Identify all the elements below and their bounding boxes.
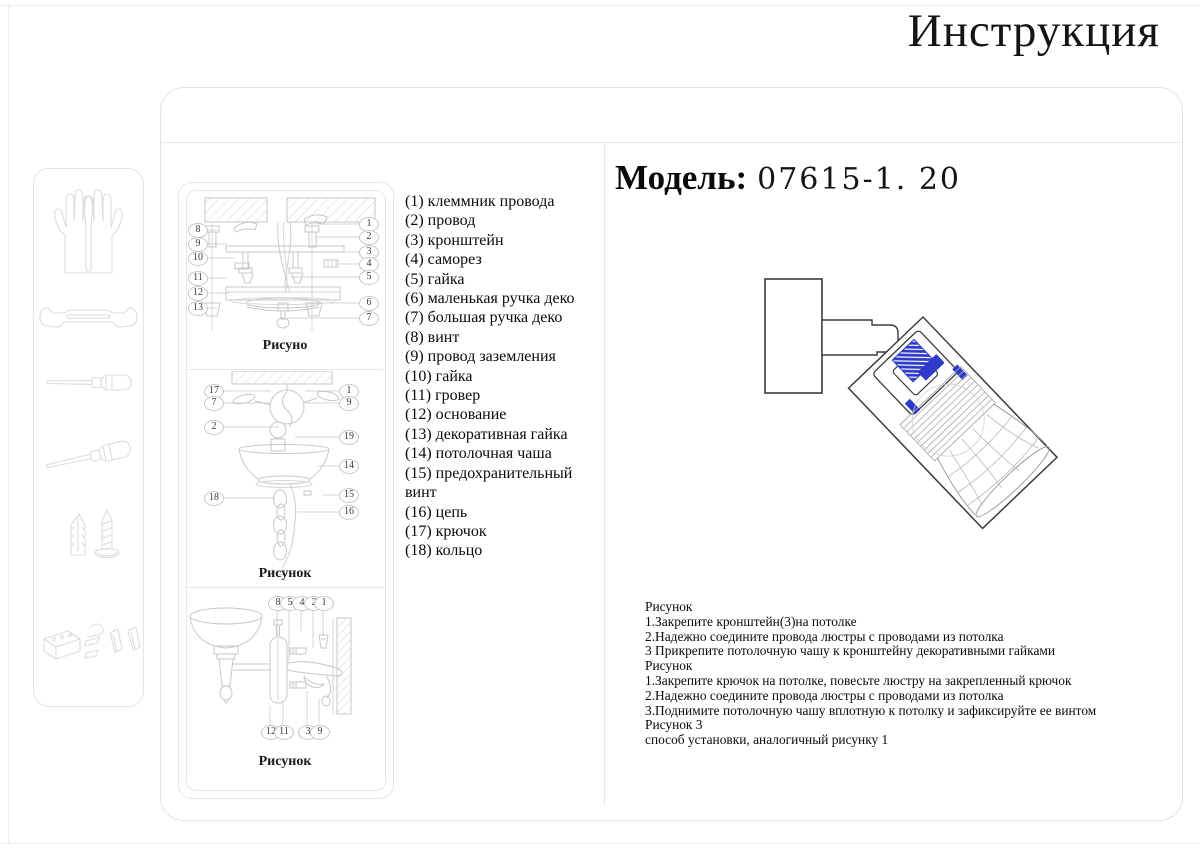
figure-separator-2 xyxy=(187,587,383,588)
callout-number: 14 xyxy=(339,459,359,474)
model-number: 07615-1. 20 xyxy=(757,162,961,197)
parts-list-item: (15) предохранительный xyxy=(405,464,610,483)
instruction-line: способ установки, аналогичный рисунку 1 xyxy=(645,733,1115,748)
callout-number: 9 xyxy=(310,725,330,740)
instruction-line: 1.Закрепите крючок на потолке, повесьте … xyxy=(645,674,1115,689)
parts-list-item: (17) крючок xyxy=(405,522,610,541)
parts-list: (1) клеммник провода (2) провод (3) крон… xyxy=(405,192,610,561)
parts-list-item: (3) кронштейн xyxy=(405,231,610,250)
instruction-line: Рисунок xyxy=(645,600,1115,615)
wrench-icon xyxy=(40,308,137,327)
screwdriver-icon xyxy=(47,375,131,390)
instruction-line: Рисунок 3 xyxy=(645,718,1115,733)
callout-number: 11 xyxy=(274,725,294,740)
figure-1-label: Рисуно xyxy=(178,338,392,354)
wall-plate xyxy=(765,279,822,393)
header-divider xyxy=(161,142,1180,143)
callout-number: 7 xyxy=(204,396,224,411)
callout-number: 10 xyxy=(188,251,208,266)
callout-number: 12 xyxy=(188,286,208,301)
figure-2-label: Рисунок xyxy=(178,566,392,582)
instruction-line: 3.Поднимите потолочную чашу вплотную к п… xyxy=(645,704,1115,719)
instruction-line: 3 Прикрепите потолочную чашу к кронштейн… xyxy=(645,644,1115,659)
model-label: Модель: xyxy=(615,158,747,198)
instructions-text: Рисунок 1.Закрепите кронштейн(3)на потол… xyxy=(645,600,1115,748)
fasteners-icon xyxy=(44,624,140,659)
parts-list-item: (1) клеммник провода xyxy=(405,192,610,211)
callout-number: 18 xyxy=(204,491,224,506)
figure-separator-1 xyxy=(187,369,383,370)
model-row: Модель: 07615-1. 20 xyxy=(615,158,961,198)
page-title: Инструкция xyxy=(790,4,1160,58)
parts-list-item: (9) провод заземления xyxy=(405,347,610,366)
parts-list-item: (7) большая ручка деко xyxy=(405,308,610,327)
callout-number: 9 xyxy=(339,396,359,411)
callout-number: 13 xyxy=(188,301,208,316)
instruction-line: 1.Закрепите кронштейн(3)на потолке xyxy=(645,615,1115,630)
parts-list-item: (6) маленькая ручка деко xyxy=(405,289,610,308)
figure-3-label: Рисунок xyxy=(178,754,392,770)
parts-list-item: (5) гайка xyxy=(405,270,610,289)
parts-list-item: (11) гровер xyxy=(405,386,610,405)
callout-number: 5 xyxy=(359,270,379,285)
parts-list-item: (16) цепь xyxy=(405,503,610,522)
callout-number: 7 xyxy=(359,311,379,326)
page-frame-left xyxy=(8,5,9,843)
parts-list-item: (4) саморез xyxy=(405,250,610,269)
anchor-screw-icon xyxy=(71,510,119,558)
gloves-icon xyxy=(55,190,122,273)
parts-list-item: (18) кольцо xyxy=(405,541,610,560)
callout-number: 9 xyxy=(188,237,208,252)
screwdriver-icon-2 xyxy=(45,440,131,475)
lamp-technical-drawing xyxy=(738,258,1088,550)
callout-number: 8 xyxy=(188,223,208,238)
callout-number: 15 xyxy=(339,488,359,503)
parts-list-item: винт xyxy=(405,483,610,502)
callout-number: 1 xyxy=(314,596,334,611)
tools-sidebar xyxy=(33,168,144,707)
callout-number: 16 xyxy=(339,505,359,520)
page-frame-bottom xyxy=(0,843,1200,844)
parts-list-item: (8) винт xyxy=(405,328,610,347)
parts-list-item: (14) потолочная чаша xyxy=(405,444,610,463)
tools-icons xyxy=(34,169,143,706)
callout-number: 19 xyxy=(339,430,359,445)
parts-list-item: (12) основание xyxy=(405,405,610,424)
instruction-sheet: { "title": "Инструкция", "model": { "lab… xyxy=(0,0,1200,848)
callout-number: 11 xyxy=(188,271,208,286)
instruction-line: 2.Надежно соедините провода люстры с про… xyxy=(645,689,1115,704)
parts-list-item: (2) провод xyxy=(405,211,610,230)
callout-number: 2 xyxy=(359,230,379,245)
mounting-arm xyxy=(822,320,898,355)
parts-list-item: (10) гайка xyxy=(405,367,610,386)
instruction-line: 2.Надежно соедините провода люстры с про… xyxy=(645,630,1115,645)
callout-number: 2 xyxy=(204,420,224,435)
instruction-line: Рисунок xyxy=(645,659,1115,674)
parts-list-item: (13) декоративная гайка xyxy=(405,425,610,444)
callout-number: 6 xyxy=(359,296,379,311)
